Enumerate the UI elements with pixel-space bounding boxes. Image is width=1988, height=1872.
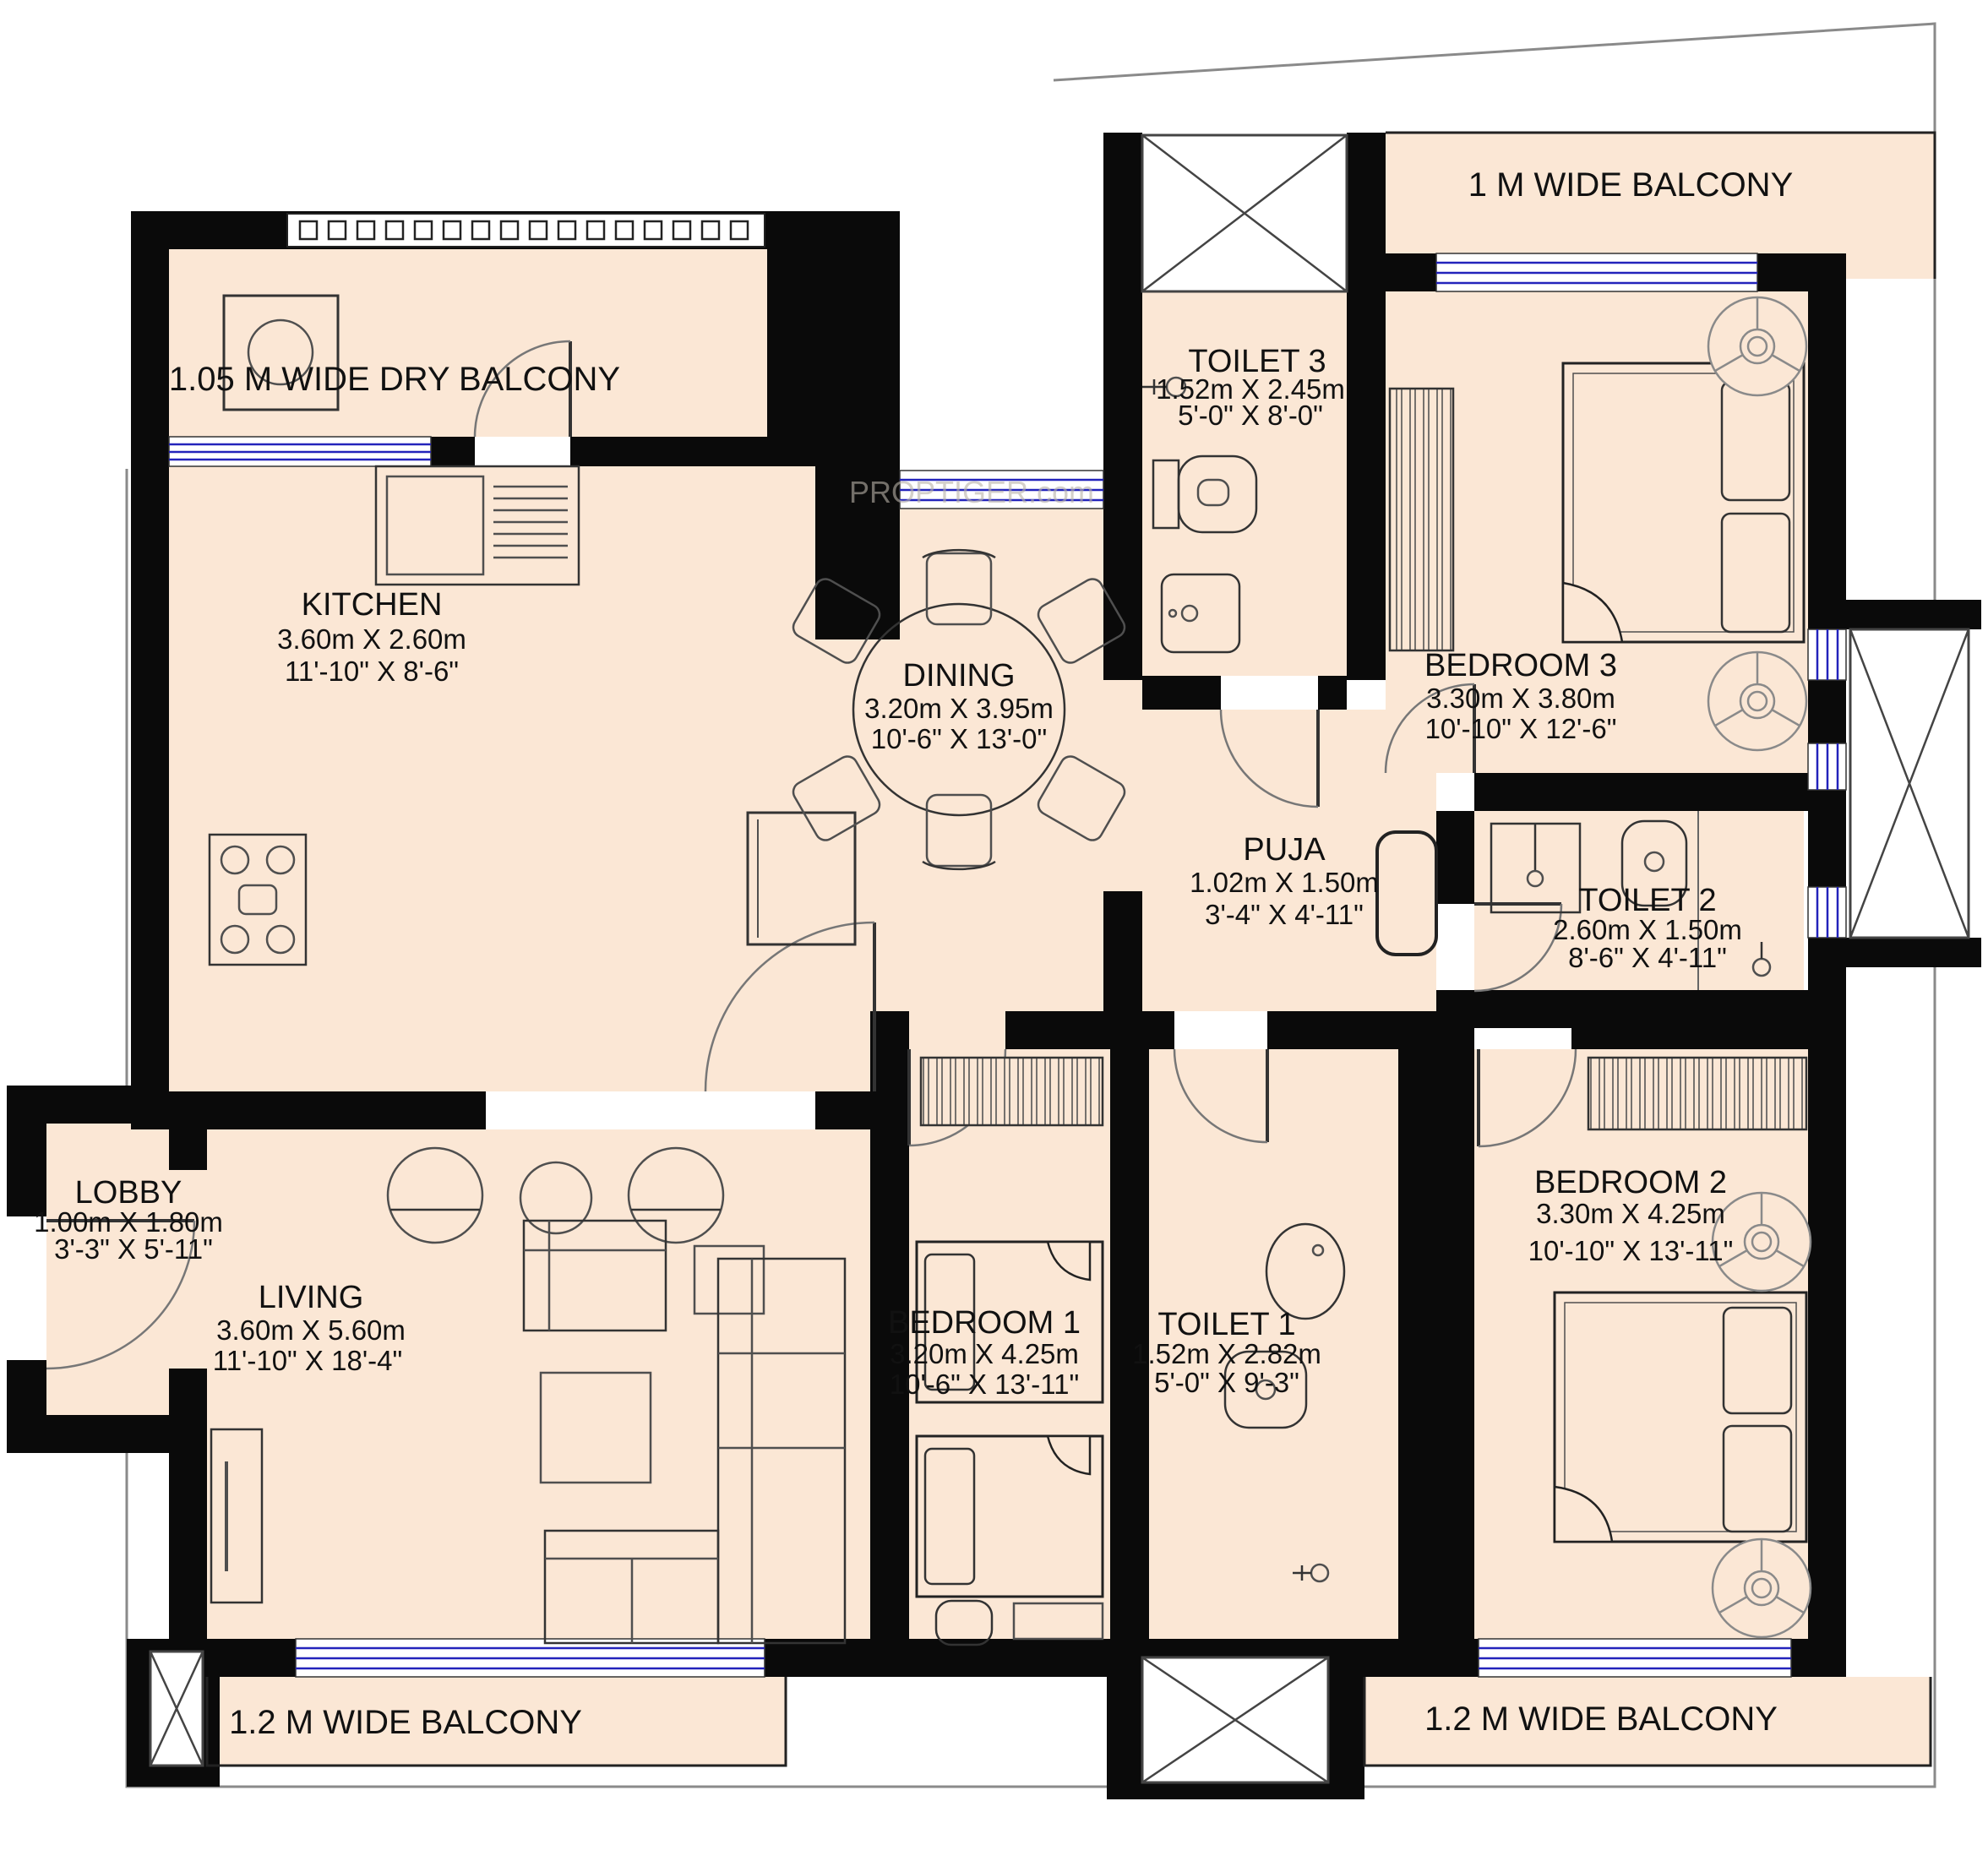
vent-grille-icon [287,214,765,247]
label-puja-m: 1.02m X 1.50m [1190,867,1379,898]
label-toilet2-m: 2.60m X 1.50m [1553,914,1742,945]
label-living-ft: 11'-10" X 18'-4" [213,1345,402,1376]
label-toilet1-m: 1.52m X 2.82m [1132,1338,1321,1369]
label-bedroom3-name: BEDROOM 3 [1424,648,1617,683]
label-toilet1-name: TOILET 1 [1157,1307,1295,1342]
shaft-bottom-middle-icon [1142,1657,1328,1782]
wardrobe-bedroom1-icon [921,1058,1103,1125]
label-bedroom1-ft: 10'-6" X 13'-11" [890,1369,1079,1400]
label-bedroom1-name: BEDROOM 1 [888,1305,1081,1341]
label-living-m: 3.60m X 5.60m [216,1314,406,1346]
window-bedroom3-balcony-icon [1436,253,1757,291]
label-toilet2-ft: 8'-6" X 4'-11" [1568,942,1727,973]
label-dining-ft: 10'-6" X 13'-0" [871,723,1047,754]
window-bedroom3-side-icon [1808,629,1846,680]
wardrobe-bedroom3-icon [1390,389,1453,650]
label-bedroom2-name: BEDROOM 2 [1534,1165,1727,1200]
label-toilet2-name: TOILET 2 [1578,883,1716,918]
label-dining-name: DINING [903,658,1016,694]
floor-plan-drawing: 1.05 M WIDE DRY BALCONY KITCHEN 3.60m X … [0,0,1988,1872]
window-bedroom2-side-icon [1808,887,1846,938]
label-bedroom2-m: 3.30m X 4.25m [1536,1198,1725,1229]
window-living-balcony-icon [296,1639,765,1677]
label-lobby-ft: 3'-3" X 5'-11" [54,1233,213,1265]
label-dining-m: 3.20m X 3.95m [864,693,1054,724]
label-kitchen-ft: 11'-10" X 8'-6" [285,656,459,687]
label-puja-ft: 3'-4" X 4'-11" [1205,899,1364,930]
label-bedroom3-ft: 10'-10" X 12'-6" [1425,713,1617,744]
shaft-right-icon [1850,629,1969,938]
floor-plan-page: 1.05 M WIDE DRY BALCONY KITCHEN 3.60m X … [0,0,1988,1872]
label-balcony-left: 1.2 M WIDE BALCONY [229,1704,582,1741]
shaft-bottom-left-icon [150,1652,203,1766]
label-puja-name: PUJA [1243,832,1326,868]
label-dry-balcony: 1.05 M WIDE DRY BALCONY [169,361,620,398]
label-balcony-top: 1 M WIDE BALCONY [1468,166,1794,204]
label-bedroom3-m: 3.30m X 3.80m [1426,683,1615,714]
window-kitchen-drybalcony-icon [169,437,431,466]
window-toilet2-side-icon [1808,743,1846,790]
label-toilet3-ft: 5'-0" X 8'-0" [1178,400,1323,431]
label-balcony-right: 1.2 M WIDE BALCONY [1424,1701,1778,1738]
wardrobe-bedroom2-icon [1588,1058,1806,1129]
label-bedroom1-m: 3.20m X 4.25m [890,1338,1079,1369]
label-toilet1-ft: 5'-0" X 9'-3" [1154,1367,1299,1398]
shaft-top-icon [1142,135,1347,291]
label-lobby-name: LOBBY [75,1175,182,1211]
label-bedroom2-ft: 10'-10" X 13'-11" [1528,1235,1734,1266]
label-kitchen-name: KITCHEN [302,587,443,623]
watermark-text: PROPTIGER.com [849,475,1094,509]
label-living-name: LIVING [259,1280,364,1315]
label-kitchen-m: 3.60m X 2.60m [277,623,466,655]
window-bedroom2-balcony-icon [1479,1639,1791,1677]
